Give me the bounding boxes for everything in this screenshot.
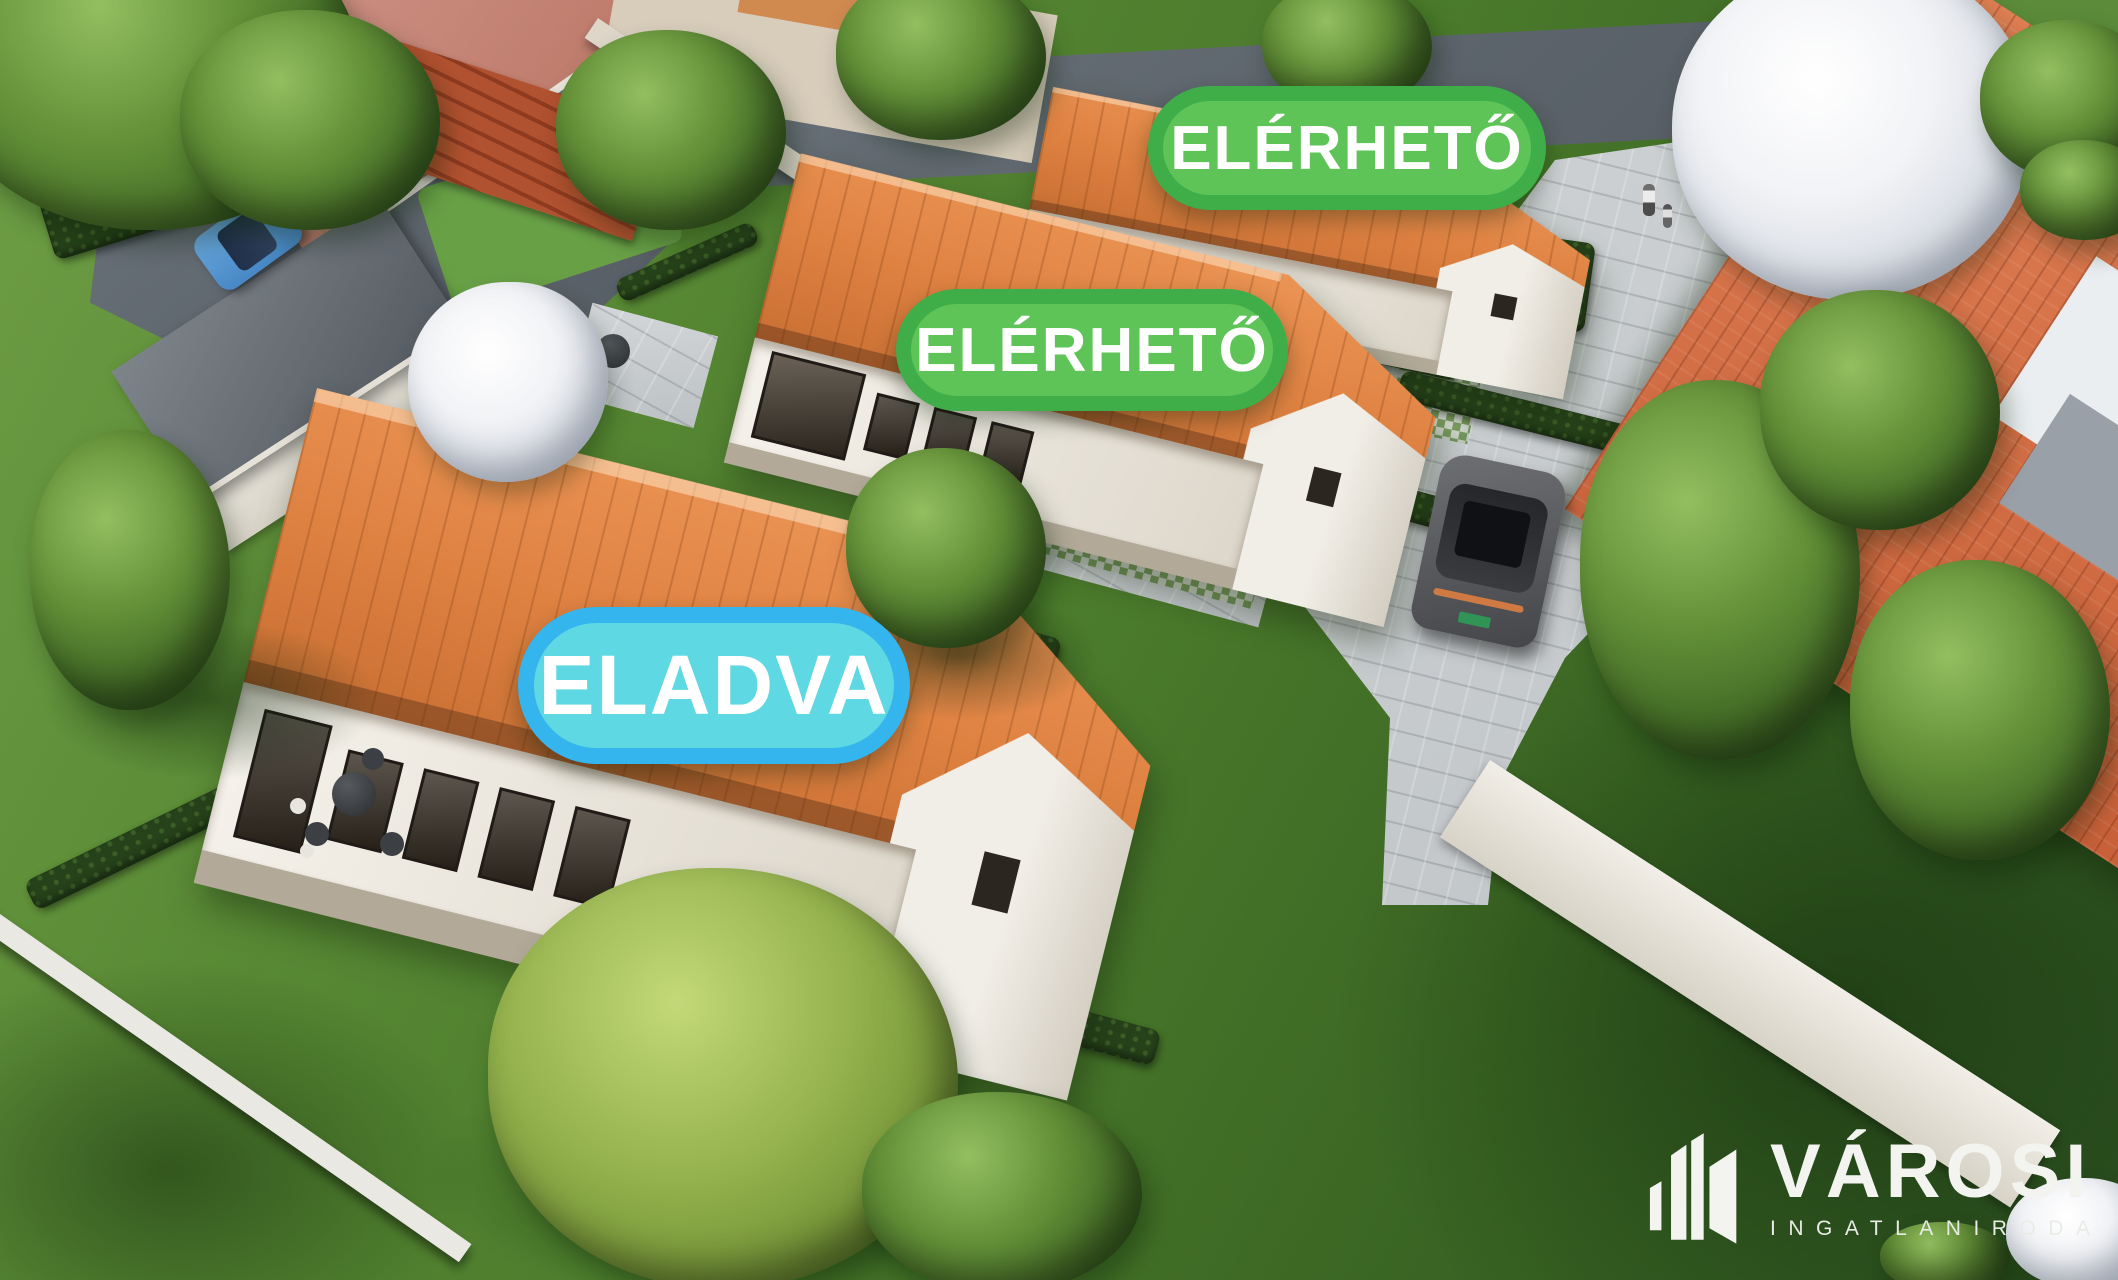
gable-window xyxy=(1490,293,1517,320)
blossom-tree xyxy=(408,282,608,482)
buildings-icon xyxy=(1648,1122,1744,1252)
tree xyxy=(556,30,786,230)
terrace-chair xyxy=(305,822,329,846)
window xyxy=(477,787,555,892)
pedestrian-adult xyxy=(1643,184,1655,216)
terrace-chair xyxy=(380,832,404,856)
terrace-glass-doors xyxy=(751,351,866,461)
tree xyxy=(1760,290,2000,530)
brand-logo: VÁROSI INGATLANIRODA xyxy=(1648,1112,2088,1262)
gable-window xyxy=(971,851,1021,914)
status-badge-available-top: ELÉRHETŐ xyxy=(1148,86,1546,210)
tree xyxy=(1850,560,2110,860)
pedestrian-child xyxy=(1663,204,1672,228)
status-badge-sold: ELADVA xyxy=(518,607,910,764)
car-license-plate xyxy=(1458,611,1492,628)
gable-window xyxy=(1306,467,1342,508)
brand-tagline: INGATLANIRODA xyxy=(1770,1217,2102,1241)
tree xyxy=(862,1092,1142,1280)
lawn-shadow-bottom-left xyxy=(0,960,480,1280)
status-badge-available-middle: ELÉRHETŐ xyxy=(896,289,1288,411)
tree xyxy=(846,448,1046,648)
tree xyxy=(180,10,440,230)
brand-name: VÁROSI xyxy=(1770,1134,2102,1210)
window xyxy=(863,393,919,460)
planter-pot xyxy=(290,798,306,814)
terrace-table xyxy=(332,772,376,816)
terrace-chair xyxy=(362,748,384,770)
planter-pot xyxy=(300,844,314,858)
window xyxy=(401,768,479,873)
aerial-render-scene: ELÉRHETŐ ELÉRHETŐ ELADVA VÁROSI INGATLAN… xyxy=(0,0,2118,1280)
tree xyxy=(30,430,230,710)
brand-logo-text: VÁROSI INGATLANIRODA xyxy=(1770,1134,2102,1241)
